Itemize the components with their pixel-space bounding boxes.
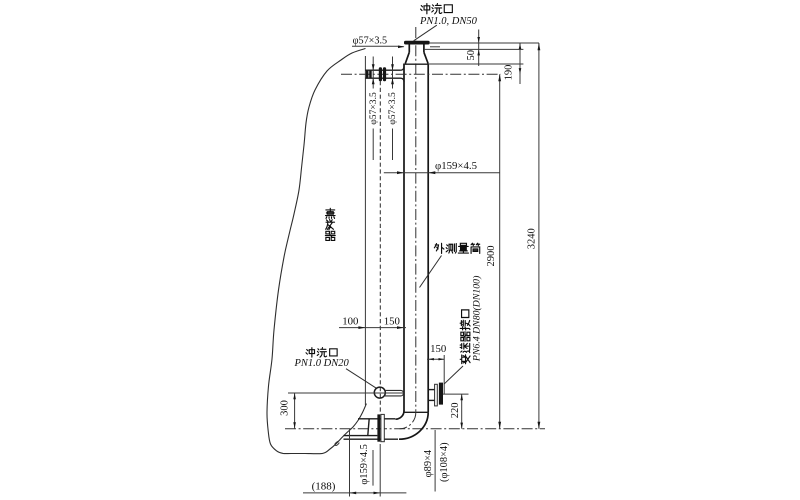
svg-text:300: 300 — [280, 400, 291, 416]
svg-text:(188): (188) — [312, 481, 336, 493]
svg-text:PN1.0 DN20: PN1.0 DN20 — [294, 358, 350, 369]
svg-text:φ57×3.5: φ57×3.5 — [353, 35, 388, 46]
svg-text:(φ108×4): (φ108×4) — [439, 442, 450, 482]
svg-text:φ57×3.5: φ57×3.5 — [387, 92, 398, 125]
svg-text:3240: 3240 — [527, 228, 538, 249]
svg-text:220: 220 — [450, 403, 461, 419]
svg-text:150: 150 — [430, 343, 446, 355]
svg-text:φ159×4.5: φ159×4.5 — [435, 160, 477, 172]
svg-text:φ159×4.5: φ159×4.5 — [359, 444, 370, 484]
svg-text:100: 100 — [342, 315, 358, 327]
svg-text:50: 50 — [466, 50, 477, 61]
svg-text:φ89×4: φ89×4 — [423, 449, 434, 477]
svg-text:PN6.4 DN80(DN100): PN6.4 DN80(DN100) — [471, 276, 482, 362]
svg-text:2900: 2900 — [486, 246, 497, 267]
svg-text:PN1.0, DN50: PN1.0, DN50 — [419, 16, 478, 27]
svg-text:150: 150 — [384, 315, 400, 327]
svg-text:190: 190 — [504, 65, 515, 81]
svg-text:φ57×3.5: φ57×3.5 — [368, 92, 379, 125]
